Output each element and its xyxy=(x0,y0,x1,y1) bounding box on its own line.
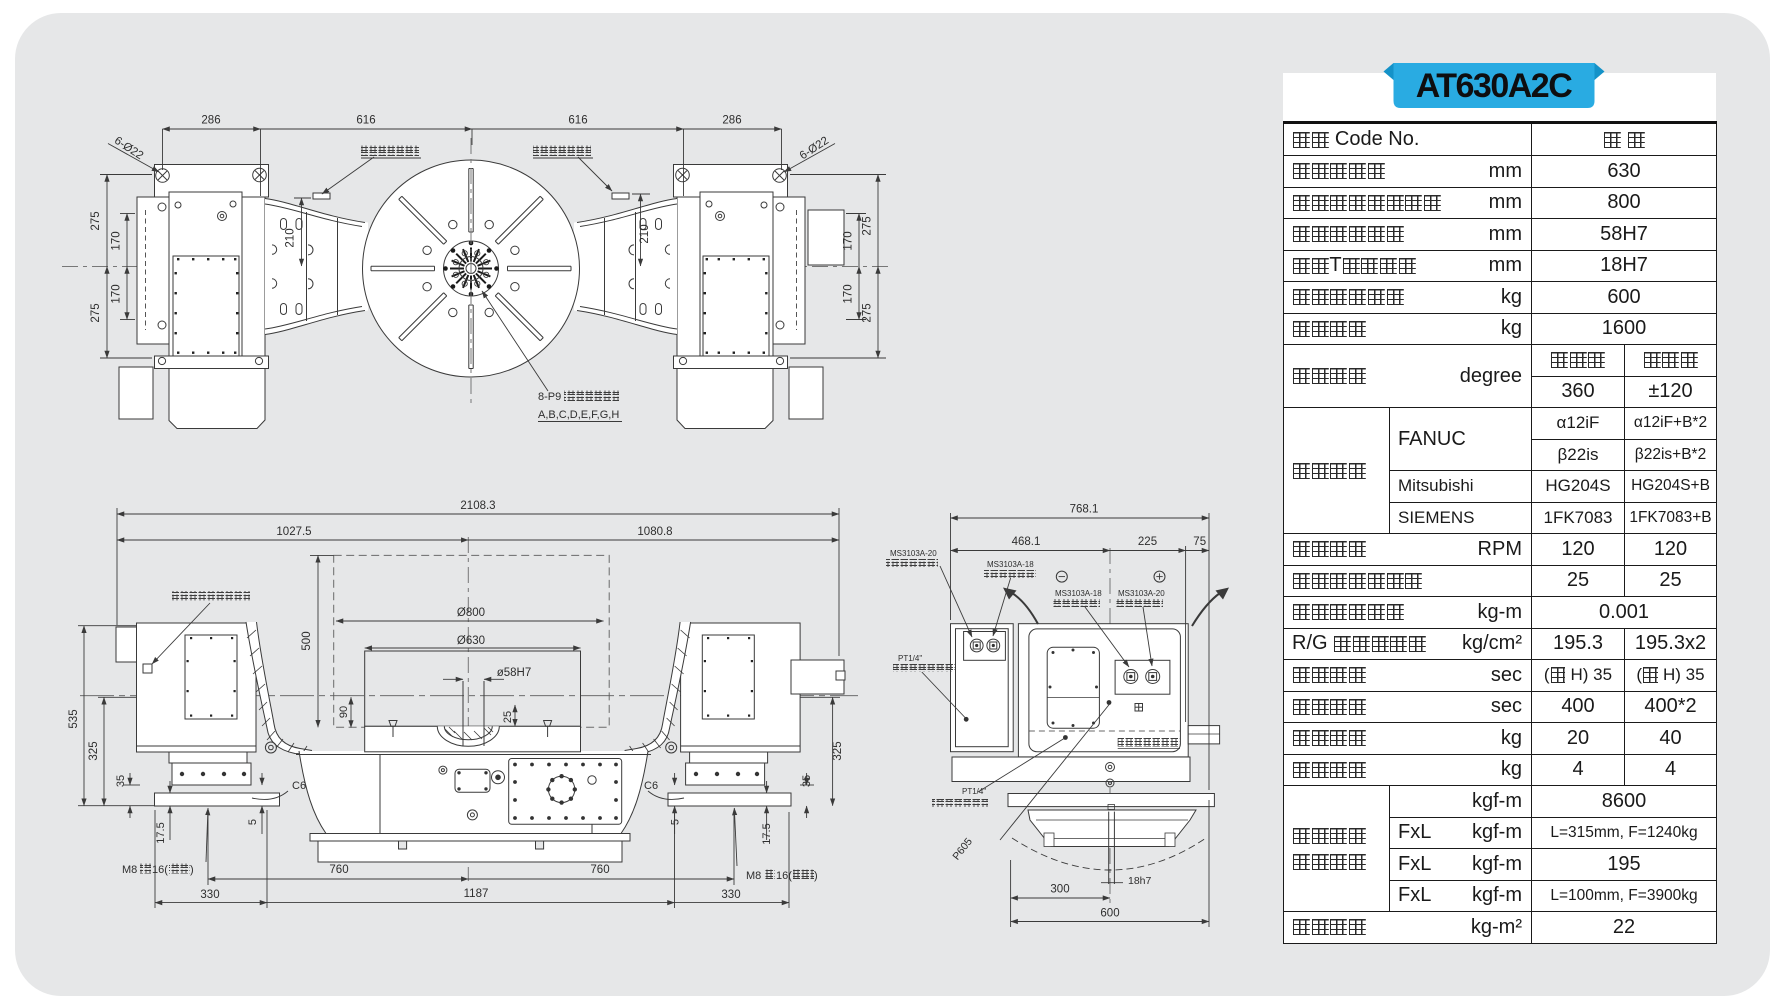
svg-text:500: 500 xyxy=(301,631,313,650)
svg-text:210: 210 xyxy=(285,228,297,247)
svg-text:1027.5: 1027.5 xyxy=(276,526,311,538)
svg-text:275: 275 xyxy=(90,211,102,230)
svg-text:75: 75 xyxy=(1193,536,1206,548)
svg-text:760: 760 xyxy=(590,864,609,876)
svg-text:18h7: 18h7 xyxy=(1128,875,1152,887)
svg-text:616: 616 xyxy=(356,115,375,127)
svg-text:330: 330 xyxy=(721,889,740,901)
svg-text:768.1: 768.1 xyxy=(1070,504,1099,516)
svg-text:170: 170 xyxy=(843,284,855,303)
svg-text:5: 5 xyxy=(670,819,682,825)
svg-text:468.1: 468.1 xyxy=(1012,536,1041,548)
svg-text:16(: 16( xyxy=(152,864,168,876)
svg-text:25: 25 xyxy=(502,711,514,723)
svg-text:17.5: 17.5 xyxy=(761,823,773,844)
svg-text:170: 170 xyxy=(111,284,123,303)
svg-text:35: 35 xyxy=(115,775,127,787)
svg-text:325: 325 xyxy=(832,741,844,760)
svg-text:PT1/4": PT1/4" xyxy=(962,787,986,796)
svg-text:330: 330 xyxy=(200,889,219,901)
svg-text:): ) xyxy=(814,870,818,882)
svg-text:275: 275 xyxy=(862,216,874,235)
svg-text:1080.8: 1080.8 xyxy=(637,526,672,538)
svg-text:286: 286 xyxy=(201,115,220,127)
svg-text:A,B,C,D,E,F,G,H: A,B,C,D,E,F,G,H xyxy=(538,409,619,421)
svg-text:M8: M8 xyxy=(122,864,137,876)
svg-text:P605: P605 xyxy=(950,836,975,863)
svg-text:170: 170 xyxy=(111,231,123,250)
svg-text:): ) xyxy=(190,864,194,876)
svg-text:275: 275 xyxy=(862,303,874,322)
svg-text:C6: C6 xyxy=(292,780,306,792)
svg-text:17.5: 17.5 xyxy=(155,822,167,843)
svg-text:M8: M8 xyxy=(746,870,761,882)
svg-text:616: 616 xyxy=(568,115,587,127)
svg-text:300: 300 xyxy=(1050,884,1069,896)
svg-text:90: 90 xyxy=(338,706,350,718)
svg-text:286: 286 xyxy=(722,115,741,127)
svg-text:8-P9: 8-P9 xyxy=(538,391,561,403)
svg-text:5: 5 xyxy=(247,819,259,825)
svg-text:16(: 16( xyxy=(776,870,792,882)
svg-text:600: 600 xyxy=(1100,908,1119,920)
svg-text:210: 210 xyxy=(639,224,651,243)
svg-text:35: 35 xyxy=(801,775,813,787)
svg-text:275: 275 xyxy=(90,303,102,322)
svg-text:ø58H7: ø58H7 xyxy=(497,667,532,679)
svg-text:MS3103A-20: MS3103A-20 xyxy=(1118,589,1165,598)
svg-text:225: 225 xyxy=(1138,536,1157,548)
svg-text:170: 170 xyxy=(843,231,855,250)
svg-text:MS3103A-18: MS3103A-18 xyxy=(987,560,1034,569)
svg-text:MS3103A-20: MS3103A-20 xyxy=(890,549,937,558)
svg-text:PT1/4": PT1/4" xyxy=(898,654,922,663)
svg-text:C6: C6 xyxy=(644,780,658,792)
svg-text:MS3103A-18: MS3103A-18 xyxy=(1055,589,1102,598)
svg-text:1187: 1187 xyxy=(464,888,489,900)
svg-text:Ø800: Ø800 xyxy=(457,607,485,619)
svg-text:2108.3: 2108.3 xyxy=(460,500,495,512)
svg-text:535: 535 xyxy=(68,709,80,728)
svg-text:Ø630: Ø630 xyxy=(457,635,485,647)
svg-text:325: 325 xyxy=(88,741,100,760)
svg-text:760: 760 xyxy=(329,864,348,876)
